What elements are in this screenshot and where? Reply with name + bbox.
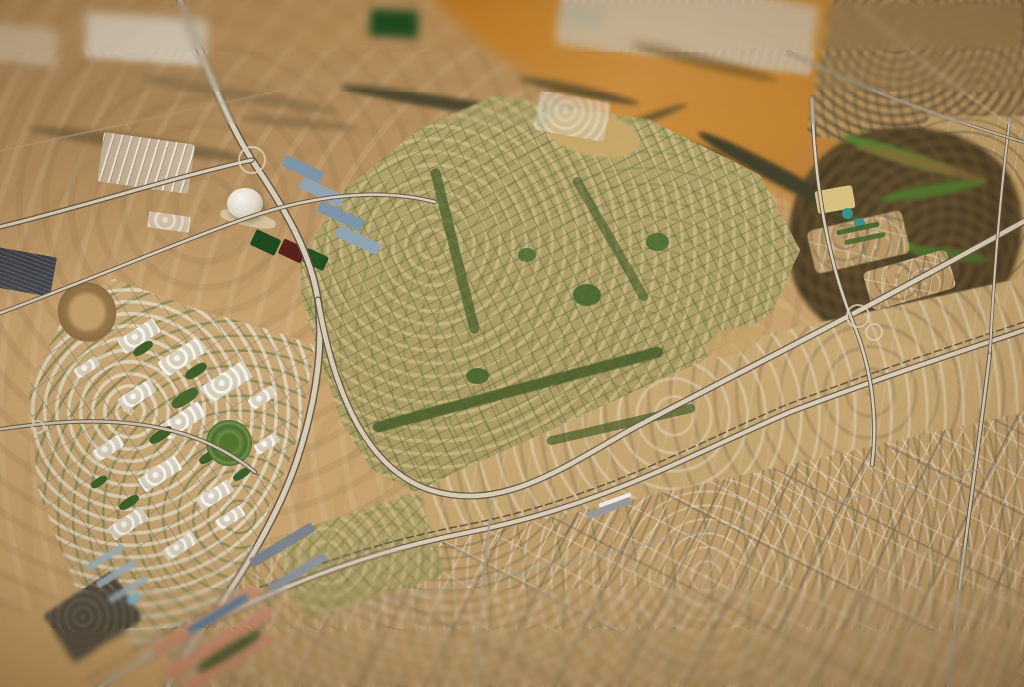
solar-farm xyxy=(0,247,57,297)
district-park-2 xyxy=(646,233,669,251)
exhibition-dome xyxy=(227,188,263,219)
white-cluster-far-topleft xyxy=(0,23,60,67)
green-farm-top-1 xyxy=(369,9,418,38)
aerial-photo xyxy=(0,0,1024,687)
depot-west xyxy=(147,211,191,233)
circular-park xyxy=(206,420,252,466)
district-park-4 xyxy=(518,248,536,262)
water-tank-1 xyxy=(842,208,853,219)
warehouse-block-west xyxy=(97,132,195,194)
farm-plot-green-1 xyxy=(250,229,282,256)
desert-shadow-3 xyxy=(238,113,360,134)
desert-shadow-2 xyxy=(138,71,339,119)
district-park-1 xyxy=(573,284,601,306)
district-park-3 xyxy=(466,368,489,384)
white-cluster-topleft xyxy=(84,12,209,66)
terrain-feature-layer xyxy=(0,0,1024,687)
